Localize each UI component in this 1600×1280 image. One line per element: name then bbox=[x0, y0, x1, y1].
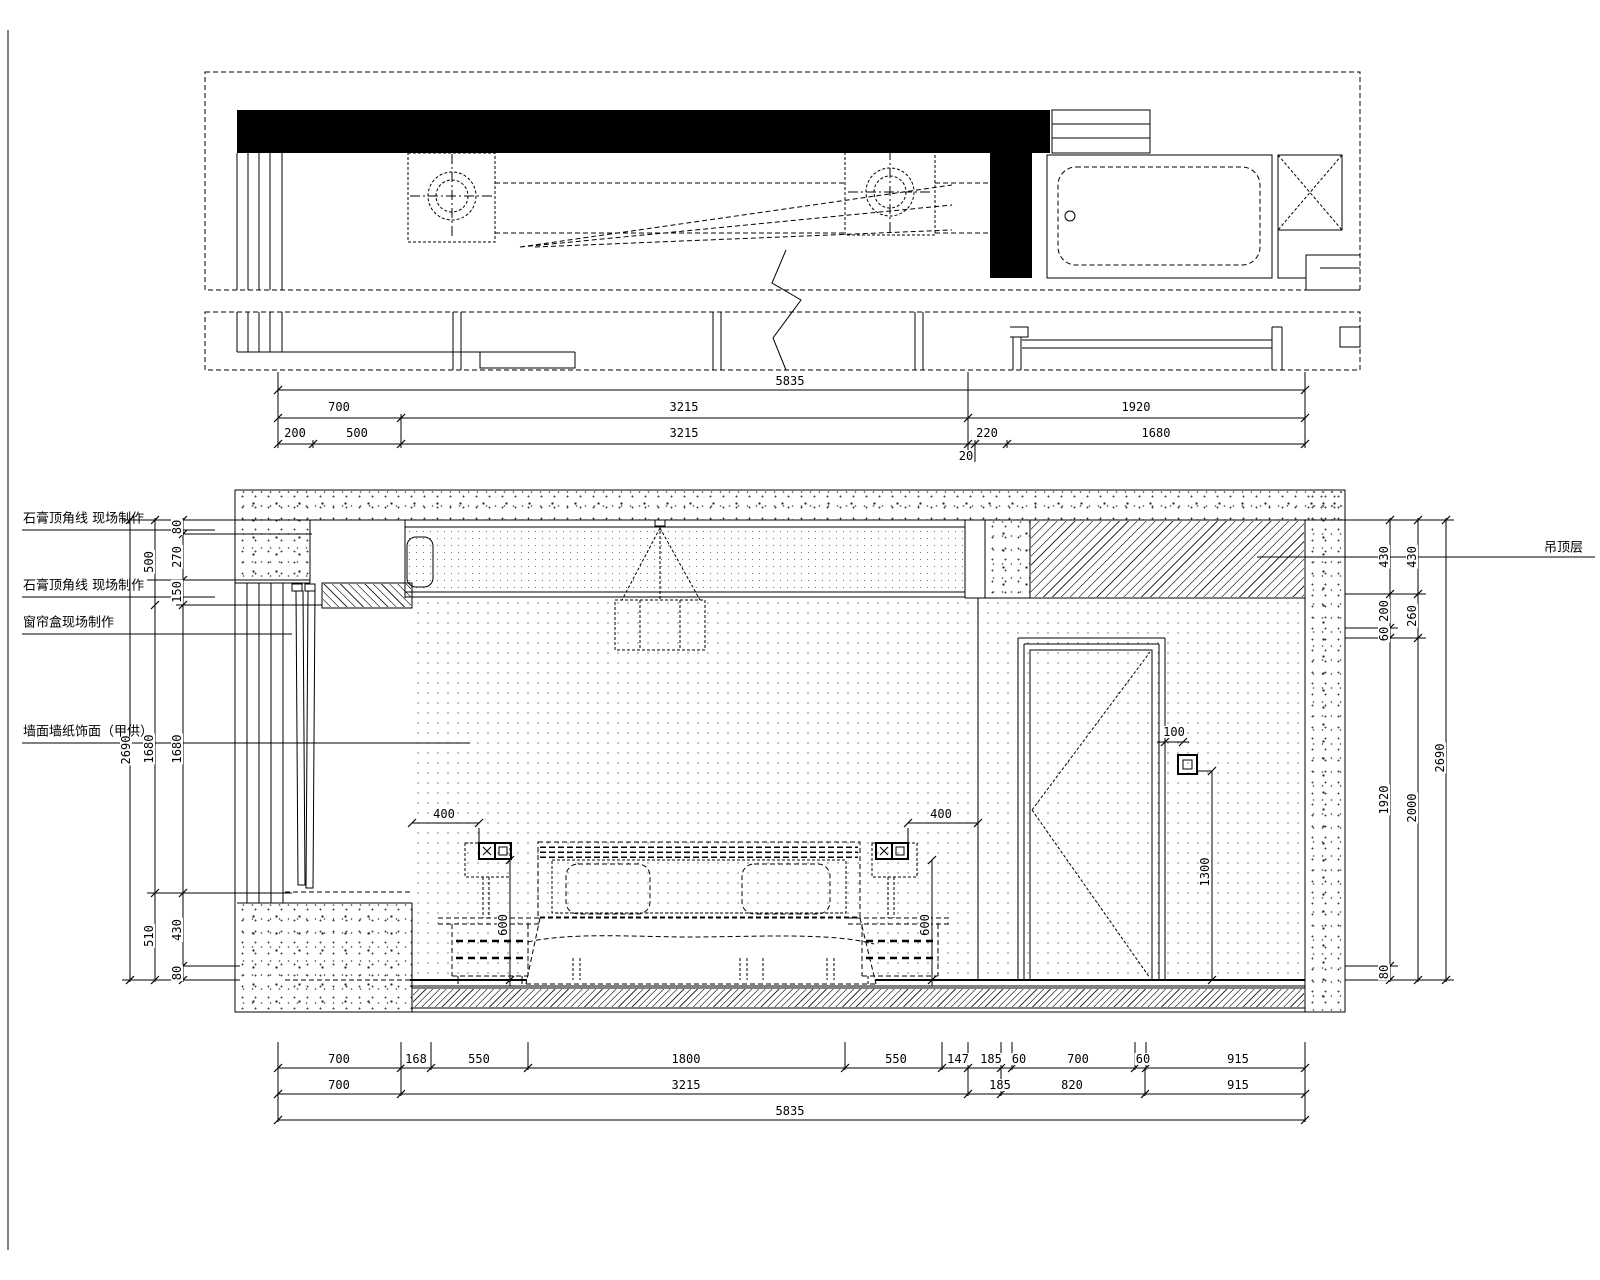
dim-bottom: 820 bbox=[1060, 1079, 1084, 1091]
dim-top: 1680 bbox=[1141, 427, 1172, 439]
dim-bottom: 147 bbox=[946, 1053, 970, 1065]
dim-socket-left: 400 bbox=[432, 808, 456, 820]
dim-bottom: 60 bbox=[1011, 1053, 1027, 1065]
dim-top: 200 bbox=[283, 427, 307, 439]
dim-top: 20 bbox=[958, 450, 974, 462]
dim-bottom: 550 bbox=[467, 1053, 491, 1065]
dim-bottom: 3215 bbox=[671, 1079, 702, 1091]
dim-left: 80 bbox=[171, 519, 183, 535]
dim-bottom: 550 bbox=[884, 1053, 908, 1065]
dim-left: 1680 bbox=[171, 734, 183, 765]
dim-switch-height: 1300 bbox=[1199, 857, 1211, 888]
dim-right: 2690 bbox=[1434, 743, 1446, 774]
dim-switch-offset: 100 bbox=[1162, 726, 1186, 738]
note-curtain-box: 窗帘盒现场制作 bbox=[22, 612, 115, 631]
dim-left: 150 bbox=[171, 580, 183, 604]
dim-left: 270 bbox=[171, 545, 183, 569]
dim-bottom: 185 bbox=[988, 1079, 1012, 1091]
dim-right: 1920 bbox=[1378, 785, 1390, 816]
dim-bottom: 915 bbox=[1226, 1079, 1250, 1091]
dimension-and-note-labels: 5835700321519202005003215220168020700168… bbox=[0, 0, 1600, 1280]
dim-bottom: 1800 bbox=[671, 1053, 702, 1065]
dim-bottom: 700 bbox=[327, 1053, 351, 1065]
note-ceiling-layer: 吊顶层 bbox=[1543, 537, 1584, 556]
dim-left: 510 bbox=[143, 924, 155, 948]
dim-right: 200 bbox=[1378, 599, 1390, 623]
dim-left: 80 bbox=[171, 965, 183, 981]
dim-top: 700 bbox=[327, 401, 351, 413]
dim-right: 2000 bbox=[1406, 793, 1418, 824]
dim-top: 1920 bbox=[1121, 401, 1152, 413]
dim-right: 260 bbox=[1406, 604, 1418, 628]
dim-socket-height-right: 600 bbox=[919, 913, 931, 937]
dim-right: 80 bbox=[1378, 964, 1390, 980]
dim-top: 220 bbox=[975, 427, 999, 439]
dim-bottom: 700 bbox=[327, 1079, 351, 1091]
dim-right: 430 bbox=[1406, 545, 1418, 569]
note-crown-molding-1: 石膏顶角线 现场制作 bbox=[22, 508, 145, 527]
dim-left: 500 bbox=[143, 550, 155, 574]
dim-top: 500 bbox=[345, 427, 369, 439]
cad-drawing-sheet: 5835700321519202005003215220168020700168… bbox=[0, 0, 1600, 1280]
dim-socket-height-left: 600 bbox=[497, 913, 509, 937]
note-wallpaper: 墙面墙纸饰面（甲供） bbox=[22, 721, 154, 740]
dim-socket-right: 400 bbox=[929, 808, 953, 820]
dim-top: 3215 bbox=[669, 401, 700, 413]
dim-top: 3215 bbox=[669, 427, 700, 439]
dim-bottom: 185 bbox=[979, 1053, 1003, 1065]
dim-top-total: 5835 bbox=[775, 375, 806, 387]
note-crown-molding-2: 石膏顶角线 现场制作 bbox=[22, 575, 145, 594]
dim-bottom: 60 bbox=[1135, 1053, 1151, 1065]
dim-right: 60 bbox=[1378, 626, 1390, 642]
dim-bottom-total: 5835 bbox=[775, 1105, 806, 1117]
dim-bottom: 168 bbox=[404, 1053, 428, 1065]
dim-bottom: 700 bbox=[1066, 1053, 1090, 1065]
dim-right: 430 bbox=[1378, 545, 1390, 569]
dim-bottom: 915 bbox=[1226, 1053, 1250, 1065]
dim-left: 430 bbox=[171, 918, 183, 942]
